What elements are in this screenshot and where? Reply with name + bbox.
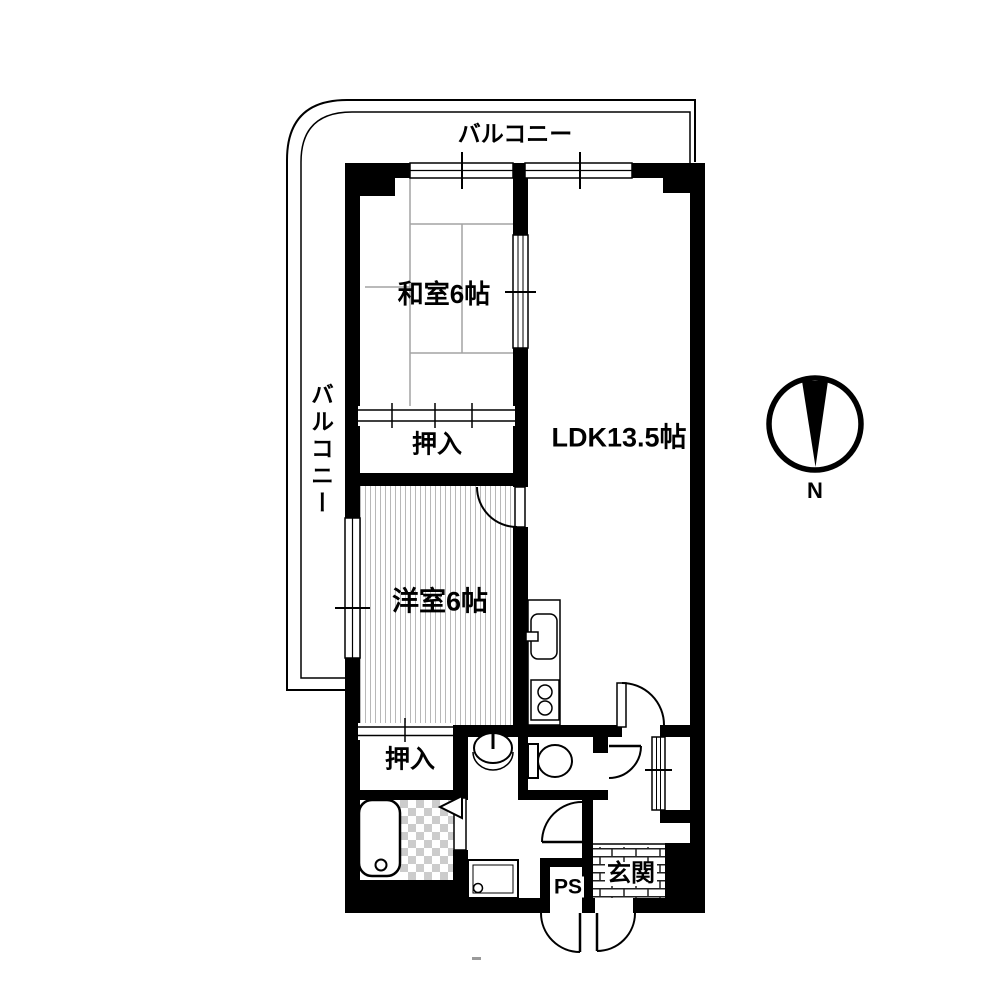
label-closet-upper: 押入 <box>412 433 462 458</box>
label-closet-lower: 押入 <box>385 748 435 773</box>
floor-plan-graphics <box>0 0 1000 1000</box>
compass-needle <box>802 381 828 467</box>
floor-plan: バルコニー バルコニー 和室6帖 LDK13.5帖 押入 洋室6帖 押入 PS … <box>0 0 1000 1000</box>
toilet-door <box>609 746 641 778</box>
label-compass-north: N <box>807 480 823 502</box>
burner-icon <box>538 701 552 715</box>
faucet-icon <box>526 632 538 641</box>
label-ldk: LDK13.5帖 <box>551 425 686 452</box>
front-door <box>597 913 635 951</box>
pipe-space-door <box>541 913 580 952</box>
label-balcony-top: バルコニー <box>458 123 573 146</box>
label-pipe-space: PS <box>552 877 584 898</box>
closet-upper-sliding-door <box>358 403 515 428</box>
label-japanese-room: 和室6帖 <box>398 281 490 307</box>
kitchen-counter <box>526 600 560 725</box>
label-entrance: 玄関 <box>605 862 657 886</box>
burner-icon <box>538 685 552 699</box>
label-balcony-left: バルコニー <box>309 383 332 518</box>
toilet <box>528 744 572 778</box>
entrance-side-sash <box>645 737 672 810</box>
hall-entrance-door <box>542 802 582 842</box>
top-window-right <box>525 152 632 189</box>
washbasin <box>473 731 513 770</box>
ldk-hall-door <box>617 683 664 727</box>
washing-machine-pan <box>468 860 518 898</box>
north-compass <box>769 378 861 470</box>
top-window-left <box>410 152 513 189</box>
stray-mark <box>472 957 481 960</box>
japanese-room-ldk-sliding-door <box>505 235 536 348</box>
bathtub <box>359 800 400 876</box>
label-western-room: 洋室6帖 <box>392 589 488 616</box>
